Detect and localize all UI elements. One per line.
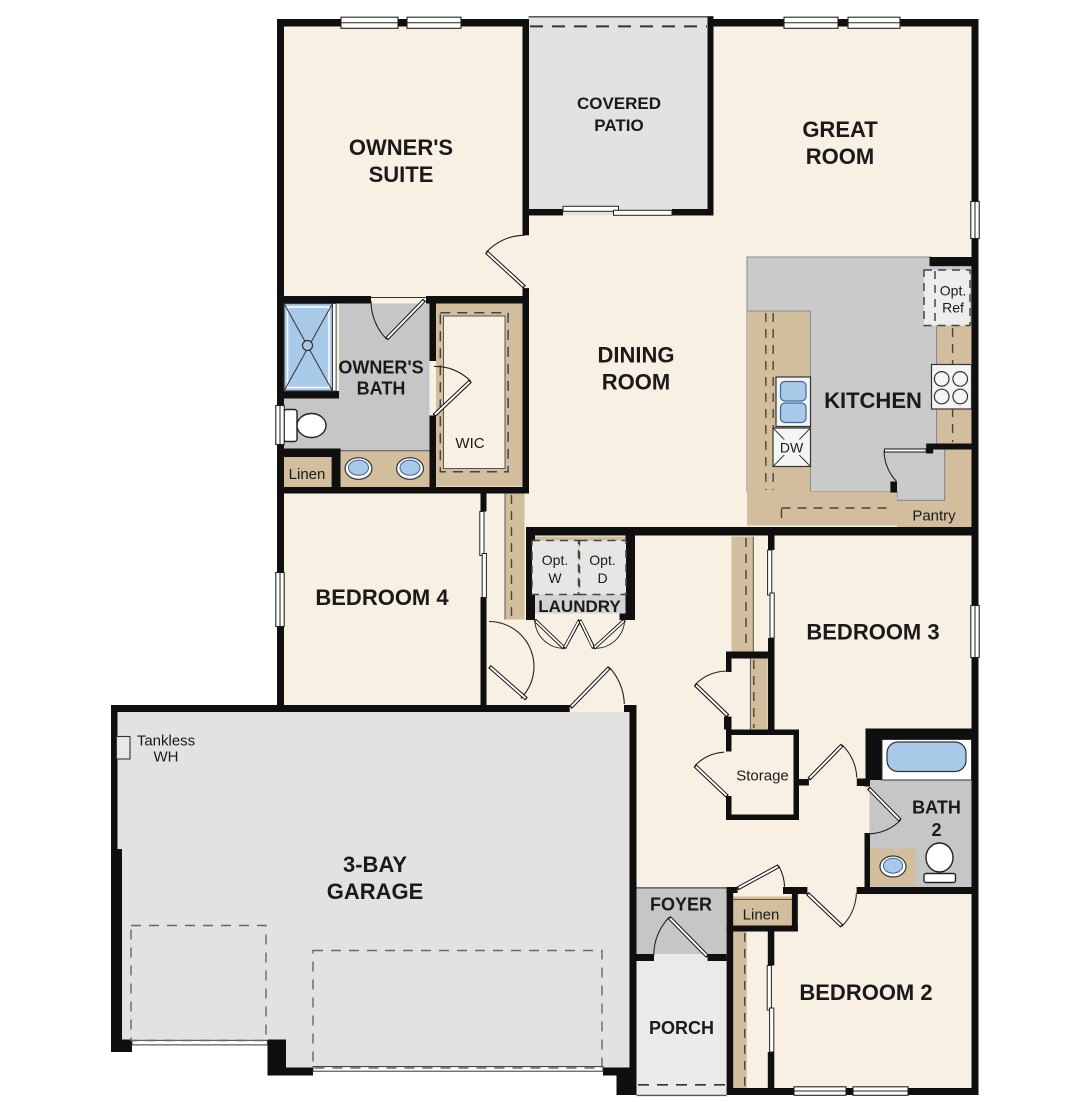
svg-text:ROOM: ROOM	[602, 370, 670, 395]
svg-text:3-BAY: 3-BAY	[343, 852, 407, 877]
svg-text:Opt.: Opt.	[940, 283, 966, 299]
svg-text:LAUNDRY: LAUNDRY	[538, 597, 621, 616]
svg-text:WIC: WIC	[455, 435, 484, 452]
svg-text:BEDROOM 2: BEDROOM 2	[799, 980, 932, 1005]
svg-text:BATH: BATH	[912, 798, 961, 818]
svg-text:KITCHEN: KITCHEN	[824, 388, 922, 413]
svg-text:SUITE: SUITE	[369, 162, 434, 187]
svg-text:D: D	[597, 570, 607, 586]
svg-text:BEDROOM 3: BEDROOM 3	[806, 620, 939, 645]
svg-text:PATIO: PATIO	[594, 116, 643, 135]
svg-text:PORCH: PORCH	[649, 1018, 714, 1038]
svg-text:FOYER: FOYER	[650, 895, 712, 915]
svg-text:COVERED: COVERED	[577, 94, 661, 113]
svg-text:DINING: DINING	[598, 343, 675, 368]
svg-text:Opt.: Opt.	[589, 552, 615, 568]
svg-text:W: W	[548, 570, 562, 586]
svg-text:OWNER'S: OWNER'S	[349, 135, 453, 160]
svg-text:WH: WH	[154, 749, 179, 766]
svg-text:GARAGE: GARAGE	[327, 879, 424, 904]
svg-text:OWNER'S: OWNER'S	[338, 358, 423, 378]
svg-text:DW: DW	[780, 440, 804, 456]
svg-text:Linen: Linen	[743, 907, 780, 924]
svg-text:BATH: BATH	[357, 379, 406, 399]
svg-text:BEDROOM 4: BEDROOM 4	[315, 585, 449, 610]
svg-text:Linen: Linen	[289, 466, 326, 483]
svg-text:ROOM: ROOM	[806, 144, 874, 169]
svg-text:Tankless: Tankless	[137, 733, 195, 750]
svg-text:Pantry: Pantry	[912, 508, 956, 525]
svg-text:2: 2	[931, 820, 941, 840]
svg-text:Ref: Ref	[942, 300, 964, 316]
svg-text:GREAT: GREAT	[802, 117, 878, 142]
svg-text:Opt.: Opt.	[542, 552, 568, 568]
svg-text:Storage: Storage	[736, 768, 789, 785]
